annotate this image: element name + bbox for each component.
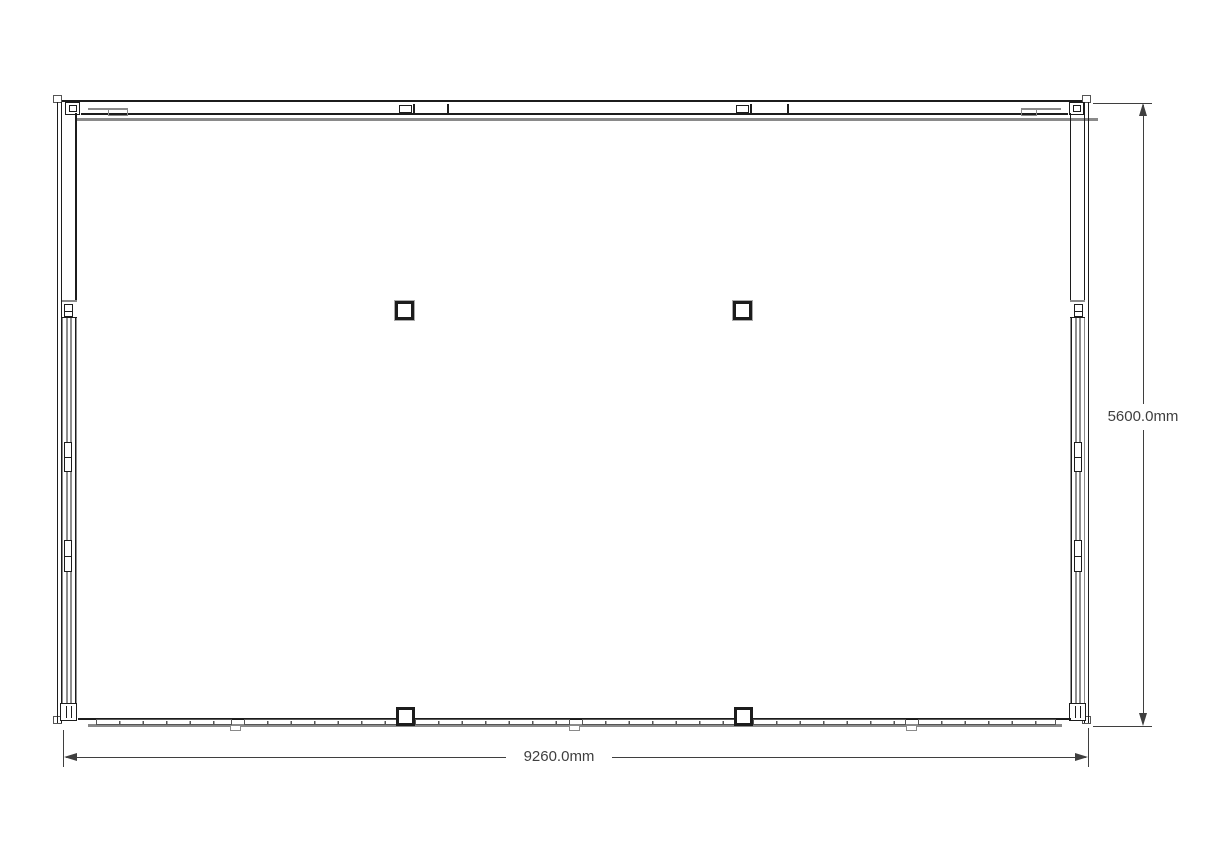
glazing-panel-6 (918, 719, 1056, 725)
top-wall-inner-line (81, 113, 1068, 115)
width-dim-line-left (66, 757, 506, 758)
top-wall-connector-left-tick-2 (447, 104, 449, 115)
bottom-wall-clip-3 (906, 725, 917, 731)
dim-arrow-left-icon (64, 753, 77, 761)
left-wall-bottom-junction (60, 703, 77, 721)
glazing-panel-3 (415, 719, 570, 725)
left-door-handle-2 (64, 540, 72, 572)
top-wall-connector-right (736, 105, 749, 113)
top-wall-connector-left (399, 105, 412, 113)
bottom-wall-clip-1 (230, 725, 241, 731)
junction-roller-icon (64, 304, 73, 317)
dim-arrow-right-icon (1075, 753, 1088, 761)
top-wall-connector-left-tick-1 (413, 104, 415, 115)
top-wall-detail-notch-left (108, 109, 128, 116)
height-dim-line-lower (1143, 430, 1144, 720)
right-door-handle-2 (1074, 540, 1082, 572)
bottom-wall-column-right (734, 707, 753, 726)
right-door-handle-1 (1074, 442, 1082, 472)
right-wall-upper-inner-line (1070, 113, 1072, 301)
left-wall-upper-inner-line (75, 113, 77, 301)
bottom-wall-column-left (396, 707, 415, 726)
right-wall-bottom-junction (1069, 703, 1086, 721)
width-dim-extension-right (1088, 728, 1089, 767)
left-door-handle-1 (64, 442, 72, 472)
right-sliding-door-track (1070, 318, 1085, 703)
width-dim-label: 9260.0mm (509, 748, 609, 766)
interior-column-right (733, 301, 752, 320)
bottom-wall-clip-2 (569, 725, 580, 731)
glazing-panel-2 (244, 719, 397, 725)
dim-arrow-up-icon (1139, 103, 1147, 116)
top-wall-connector-right-tick-1 (750, 104, 752, 115)
floor-plan-canvas: 5600.0mm 9260.0mm (0, 0, 1214, 848)
corner-post-core-icon (69, 105, 77, 112)
height-dim-label: 5600.0mm (1093, 408, 1193, 426)
corner-post-top-right (1069, 102, 1084, 115)
corner-post-core-icon (1073, 105, 1081, 112)
top-wall-detail-notch-right (1021, 109, 1037, 116)
top-wall-gray-line (75, 118, 1098, 121)
interior-column-left (395, 301, 414, 320)
width-dim-line-right (612, 757, 1086, 758)
top-wall-outer-line (57, 100, 1089, 102)
top-wall-connector-right-tick-2 (787, 104, 789, 115)
junction-roller-icon (1074, 304, 1083, 317)
width-dim-extension-left (63, 730, 64, 767)
left-wall-track-junction (62, 300, 77, 318)
right-wall-outer-frame (1084, 102, 1089, 723)
glazing-panel-5 (753, 719, 906, 725)
left-sliding-door-track (62, 318, 77, 703)
glazing-panel-1 (96, 719, 232, 725)
height-dim-line-upper (1143, 105, 1144, 404)
glazing-panel-4 (582, 719, 735, 725)
corner-post-top-left (65, 102, 80, 115)
right-wall-track-junction (1070, 300, 1085, 318)
dim-arrow-down-icon (1139, 713, 1147, 726)
